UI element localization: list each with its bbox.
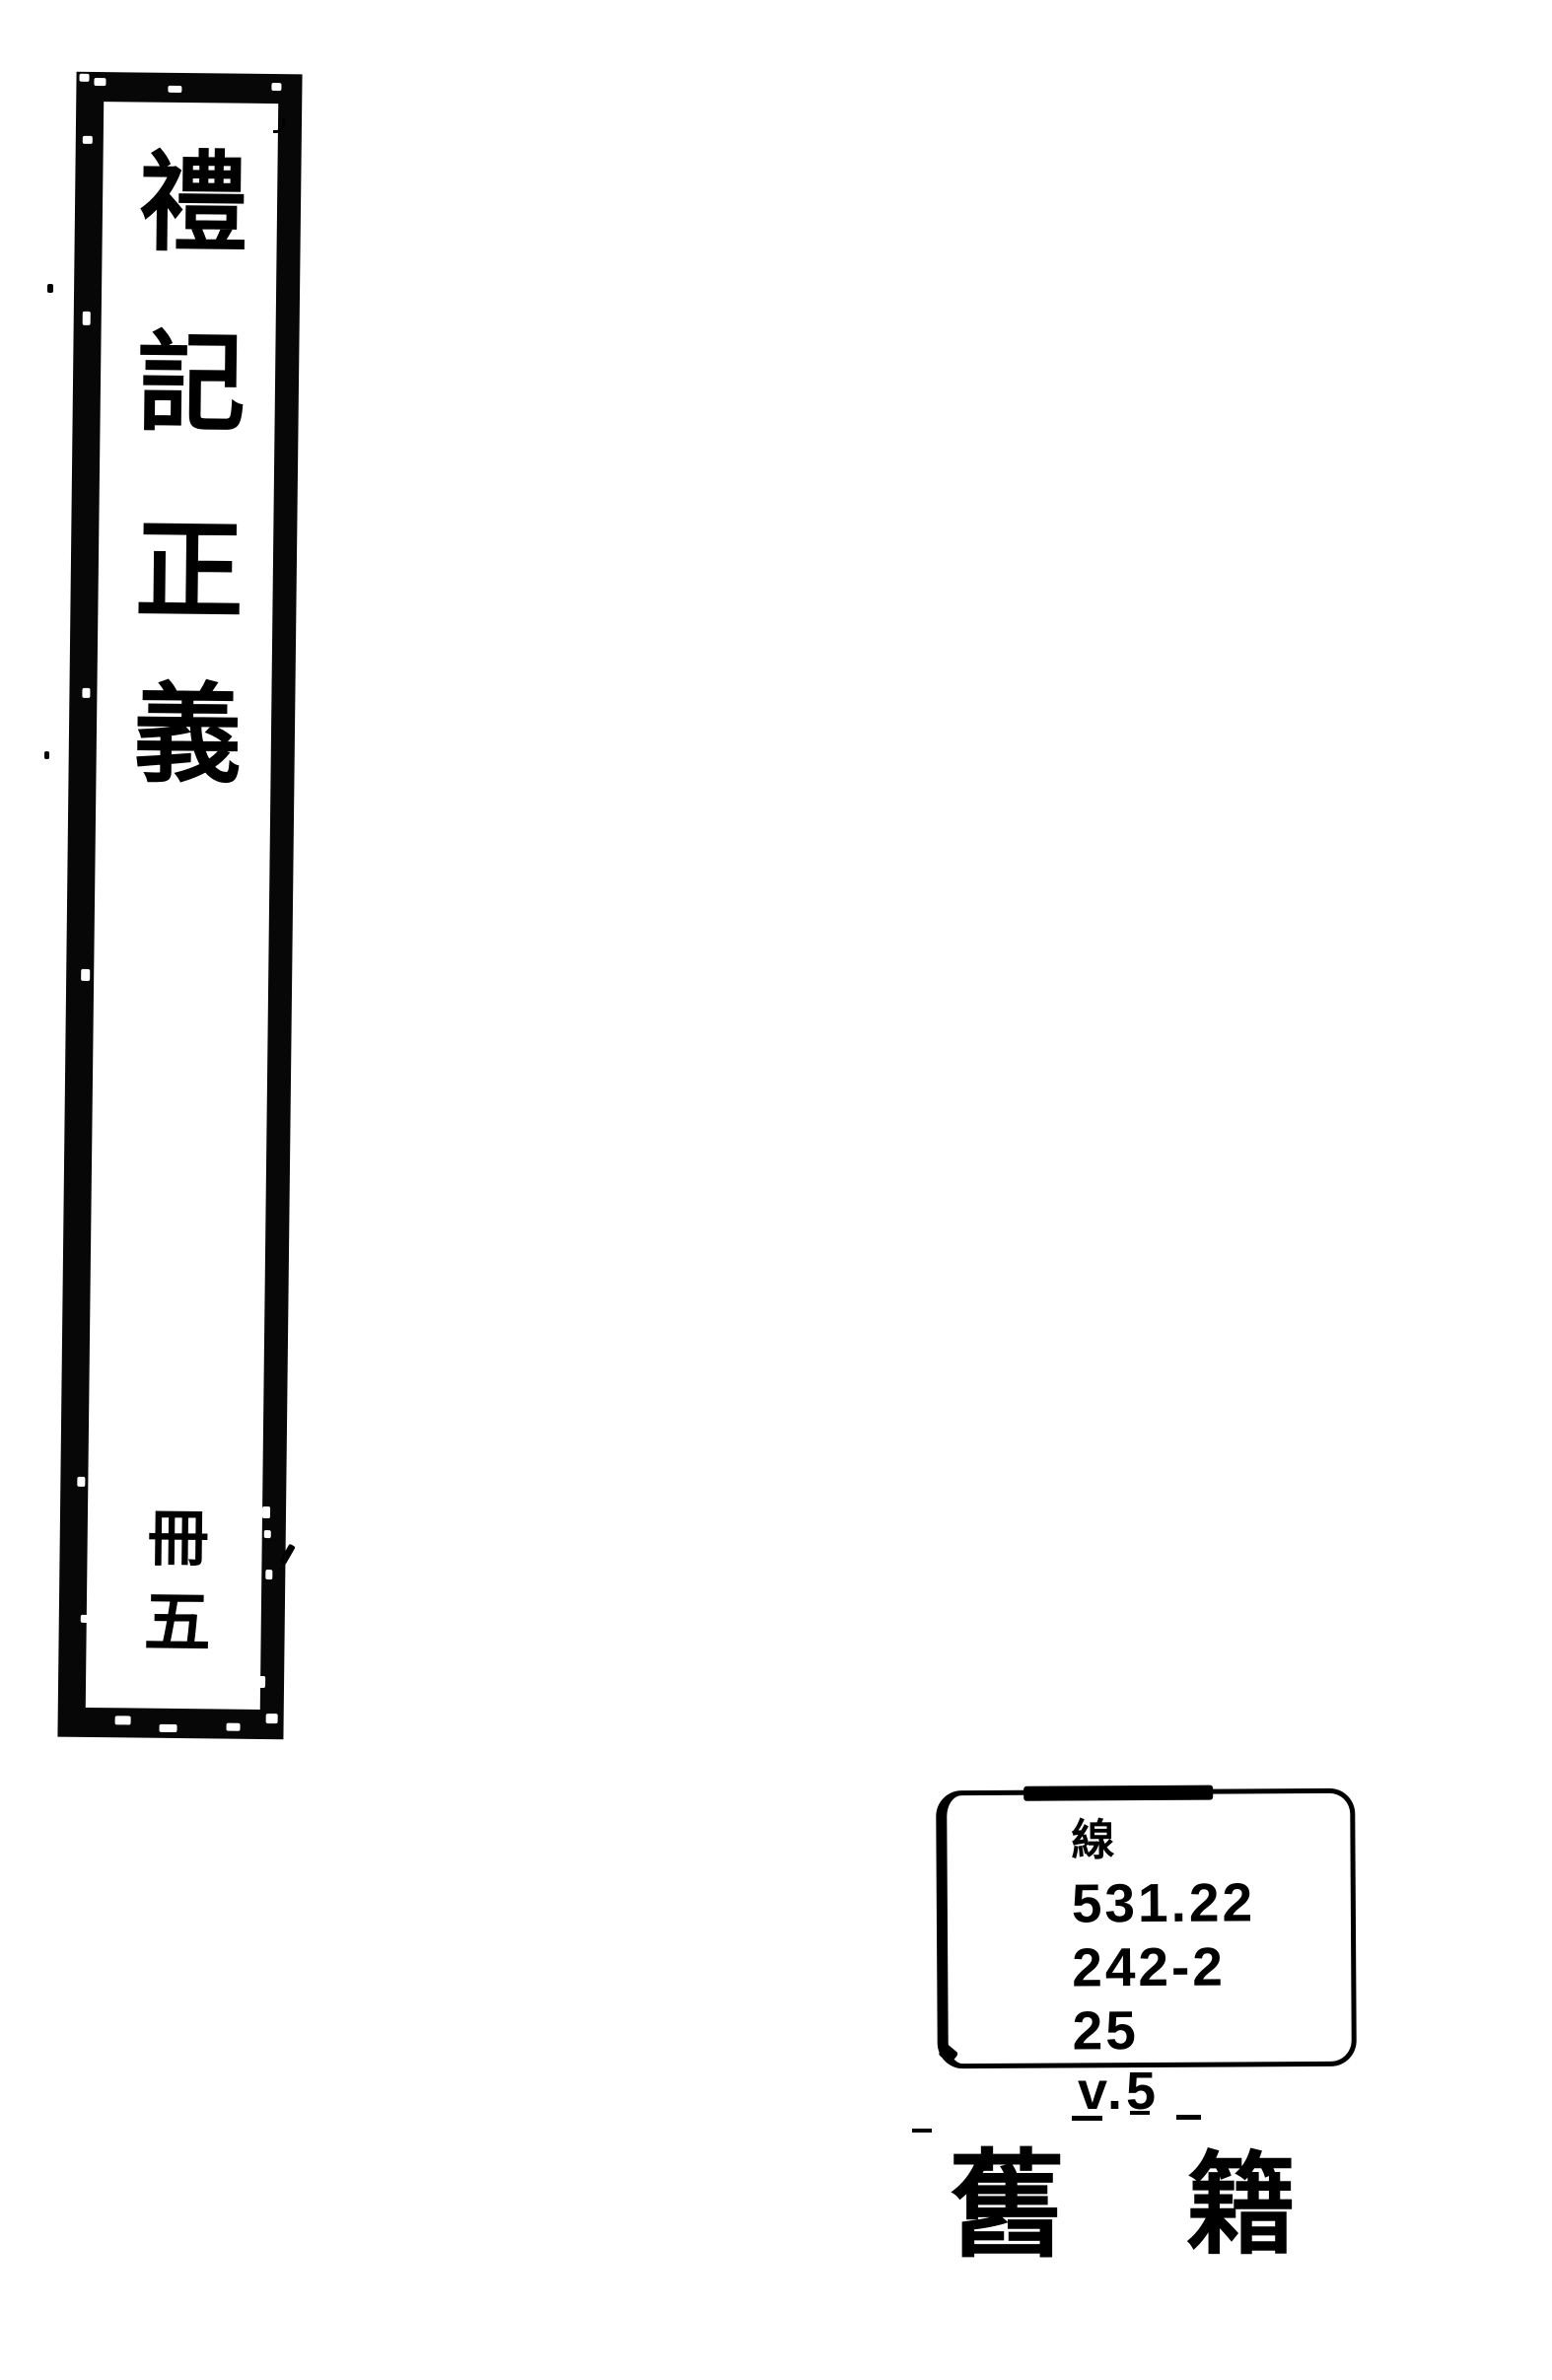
spine-volume-char-1: 冊 (147, 1508, 209, 1571)
book-spine-title-box: 禮 記 正 義 冊 五 (57, 72, 302, 1739)
scan-speckle (81, 969, 90, 981)
scan-speckle (227, 1723, 241, 1731)
scan-smudge (1179, 1787, 1207, 1798)
volume-number-text: v.5 (1078, 2065, 1160, 2118)
call-number-book-line: 242-2 (1072, 1940, 1226, 1995)
call-number-binding-line: 線 (1071, 1819, 1114, 1862)
scan-speckle (81, 1615, 89, 1623)
spine-volume-char-2: 五 (143, 1589, 211, 1657)
scan-speckle (168, 86, 181, 93)
underline-mark (1072, 2116, 1102, 2121)
scan-speckle (115, 1715, 131, 1724)
underline-mark (1176, 2115, 1201, 2120)
scan-speckle (77, 1477, 85, 1487)
scan-speckle (83, 136, 93, 144)
scan-speckle (262, 1506, 270, 1518)
spine-title-char-1: 禮 (138, 148, 247, 257)
scan-speckle (265, 1570, 272, 1579)
scan-dash-mark (912, 2129, 932, 2133)
call-number-label: 線 531.22 242-2 25 (936, 1788, 1357, 2069)
spine-title-char-2: 記 (136, 328, 246, 438)
scanned-page: 禮 記 正 義 冊 五 線 531.22 242-2 (0, 0, 1552, 2380)
call-number-class-line: 531.22 (1072, 1875, 1256, 1930)
scan-speckle (159, 1724, 176, 1732)
scan-speckle (94, 78, 106, 86)
scan-speckle (83, 312, 91, 325)
scan-speckle-dot (44, 751, 49, 759)
spine-title-char-4: 義 (132, 679, 242, 789)
spine-title-char-3: 正 (134, 516, 244, 625)
scan-speckle (264, 1530, 271, 1538)
scan-smudge (938, 2044, 958, 2065)
scan-speckle (271, 83, 281, 91)
underline-mark (1130, 2111, 1150, 2115)
category-stamp-char-2: 籍 (1186, 2150, 1297, 2261)
scan-speckle (266, 1714, 278, 1723)
scan-speckle-dot (47, 284, 53, 293)
scan-speckle (79, 74, 89, 82)
category-stamp-char-1: 舊 (949, 2147, 1065, 2264)
scan-speckle (82, 688, 90, 698)
scan-speckle (257, 1676, 265, 1688)
call-number-copy-line: 25 (1072, 2003, 1139, 2058)
